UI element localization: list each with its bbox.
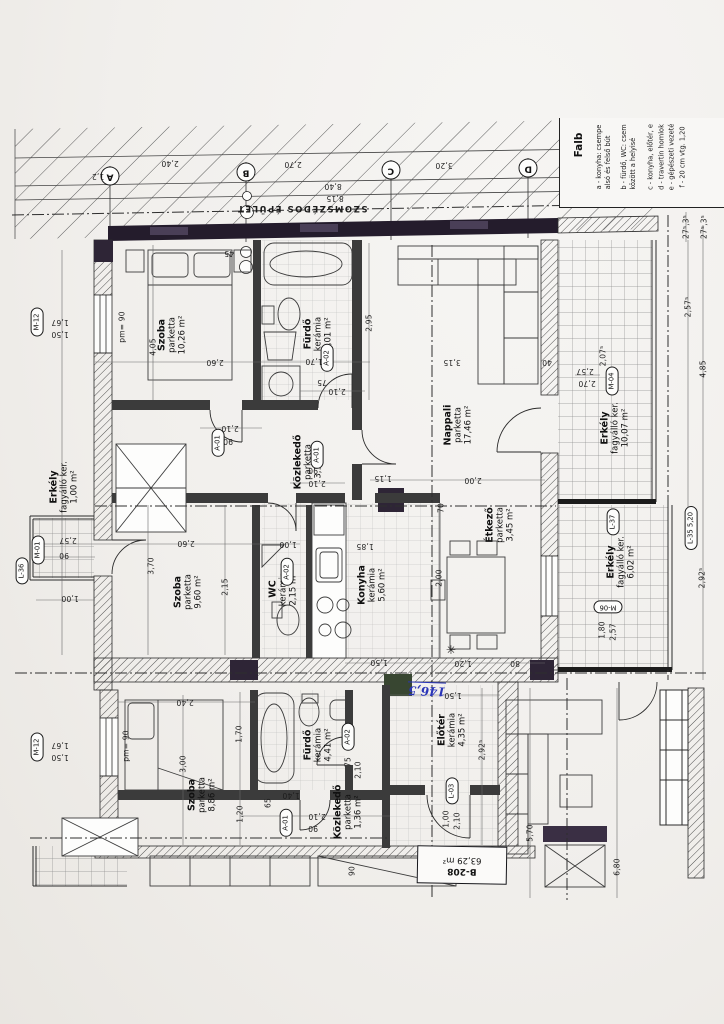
unit-number-box: B-208 63,29 m²: [417, 845, 508, 885]
dim-label-48: 2,92⁵: [698, 568, 706, 589]
dim-label-12: 2,57: [59, 536, 77, 544]
dim-label-45: 2,07⁵: [599, 346, 607, 367]
opening-tag-m-12: M-12: [31, 733, 44, 762]
room-rl-a: 8,86 m²: [208, 777, 218, 813]
room-label-10-erkély: Erkélyfagyálló ker.6,02 m²: [605, 536, 636, 588]
legend-item-line: d - travertin homlok: [658, 124, 667, 190]
dim-label-49: 1,80: [598, 621, 606, 639]
dim-label-2: 3,20: [435, 161, 453, 169]
room-rl-n: Fürdő: [302, 728, 313, 762]
room-rl-n: Nappali: [442, 405, 453, 446]
room-rl-f: kerámia: [368, 565, 378, 605]
dim-label-15: 4,05: [149, 338, 157, 356]
dim-label-16: 2,60: [206, 358, 224, 366]
dim-label-38: 1,20: [454, 659, 472, 667]
unit-area: 63,29 m²: [443, 854, 482, 865]
room-label-7-étkező: Étkezőparketta3,45 m²: [484, 507, 515, 543]
dim-label-37: 1,50: [370, 658, 388, 666]
room-rl-f: parketta: [454, 405, 464, 446]
grid-bubble-letter: B: [243, 167, 250, 177]
dim-label-23: 90: [223, 437, 233, 445]
handwritten-area-note: 146,5: [408, 681, 446, 698]
room-rl-a: 5,60 m²: [378, 565, 388, 605]
legend-item-line: a - konyha: csempe: [595, 125, 604, 190]
room-rl-n: WC: [267, 572, 278, 606]
dim-label-58: 90: [308, 824, 318, 832]
room-label-4-szoba: Szobaparketta9,60 m²: [172, 574, 203, 610]
room-rl-a: 3,45 m²: [506, 507, 516, 543]
dim-label-36: 2,00: [435, 569, 443, 587]
room-rl-n: Étkező: [484, 507, 495, 543]
dim-label-54: 1,20: [236, 805, 244, 823]
room-rl-n: Szoba: [186, 777, 197, 813]
room-rl-f: kerámia: [314, 728, 324, 762]
dim-label-53: 1,70: [235, 725, 243, 743]
room-rl-n: Konyha: [356, 565, 367, 605]
room-rl-a: 4,41 m²: [324, 728, 334, 762]
room-rl-a: 4,35 m²: [458, 713, 468, 747]
room-rl-n: Erkély: [48, 461, 59, 513]
legend-item-f: f - 20 cm vtg. 1,20: [679, 126, 688, 187]
room-label-12-fürdő: Fürdőkerámia4,41 m²: [302, 728, 333, 762]
dim-label-50: 2,57: [609, 623, 617, 641]
grid-bubble-d: D: [519, 159, 538, 178]
dim-label-21: 2,10: [328, 387, 346, 395]
room-label-13-közlekedő: Közlekedőparketta1,36 m²: [332, 785, 363, 840]
opening-tag-l-36: L-36: [16, 558, 29, 585]
dim-label-1: 2,70: [284, 160, 302, 168]
legend-item-c: c - konyha, előtér, e: [647, 124, 656, 190]
room-rl-f: parketta: [496, 507, 506, 543]
dim-label-41: 27⁵,3⁵: [682, 215, 690, 239]
dim-label-22: 2,10: [221, 424, 239, 432]
dim-label-20: 75: [317, 378, 327, 386]
room-rl-n: Erkély: [599, 402, 610, 454]
room-rl-f: kerámia: [448, 713, 458, 747]
room-rl-f: parketta: [198, 777, 208, 813]
opening-tag-m-06: M-06: [594, 601, 623, 614]
dim-label-59: 75: [344, 757, 352, 767]
room-rl-n: Erkély: [605, 536, 616, 588]
room-rl-n: Szoba: [172, 574, 183, 610]
dim-label-31: 3,70: [147, 557, 155, 575]
room-rl-a: 10,26 m²: [178, 316, 188, 355]
dim-label-5: 1,2: [92, 172, 105, 180]
dim-label-66: 6,80: [613, 858, 621, 876]
room-rl-f: fagyálló ker.: [611, 402, 621, 454]
room-rl-f: fagyálló ker.: [60, 461, 70, 513]
room-rl-n: Előtér: [436, 713, 447, 747]
legend-item-line: c - konyha, előtér, e: [647, 124, 656, 190]
dim-label-52: 3,00: [179, 755, 187, 773]
dim-label-51: 2,40: [176, 698, 194, 706]
opening-tag-m-12: M-12: [31, 308, 44, 337]
room-rl-f: parketta: [344, 785, 354, 840]
room-rl-a: 1,00 m²: [70, 461, 80, 513]
room-label-14-előtér: Előtérkerámia4,35 m²: [436, 713, 467, 747]
grid-bubble-c: C: [382, 161, 401, 180]
room-label-2-nappali: Nappaliparketta17,46 m²: [442, 405, 473, 446]
room-label-6-konyha: Konyhakerámia5,60 m²: [356, 565, 387, 605]
room-rl-n: Közlekedő: [292, 435, 303, 490]
dim-label-18: 2,95: [365, 314, 373, 332]
dim-label-55: 1,40: [282, 791, 300, 799]
legend-box: Falb a - konyha: csempealsó és felső bút…: [559, 118, 724, 208]
legend-title: Falb: [573, 133, 585, 158]
dim-label-42: 27⁵,3⁵: [700, 215, 708, 239]
room-rl-f: parketta: [168, 316, 178, 355]
dim-label-25: 90: [308, 466, 318, 474]
dim-label-11: pm= 90: [122, 730, 130, 761]
dim-label-19: 1,70: [305, 357, 323, 365]
dim-label-29: 1,15: [374, 474, 392, 482]
legend-item-a: a - konyha: csempealsó és felső bút: [595, 125, 613, 190]
opening-tag-m-04: M-04: [606, 367, 619, 396]
room-rl-n: Közlekedő: [332, 785, 343, 840]
annotation-overlay: Falb a - konyha: csempealsó és felső bút…: [0, 0, 724, 1024]
room-rl-f: fagyálló ker.: [617, 536, 627, 588]
dim-label-14: 1,00: [61, 594, 79, 602]
dim-label-24: 2,10: [308, 479, 326, 487]
room-rl-a: 10,07 m²: [621, 402, 631, 454]
opening-tag-a-02: A-02: [281, 558, 294, 586]
dim-label-40: ✳: [446, 644, 456, 656]
dim-label-62: 2,92⁵: [478, 740, 486, 761]
legend-item-line: alsó és felső bút: [604, 125, 613, 190]
dim-label-27: 40: [542, 358, 552, 366]
dim-label-43: 2,57: [576, 367, 594, 375]
room-label-9-erkély: Erkélyfagyálló ker.10,07 m²: [599, 402, 630, 454]
dim-label-7: 1,50: [51, 330, 69, 338]
grid-bubble-letter: C: [388, 165, 395, 175]
room-rl-f: parketta: [184, 574, 194, 610]
dim-label-56: 65: [264, 798, 272, 808]
dim-label-13: 90: [59, 551, 69, 559]
dim-label-60: 2,10: [354, 761, 362, 779]
opening-tag-m-01: M-01: [32, 536, 45, 565]
unit-id: B-208: [447, 864, 477, 876]
room-rl-a: 17,46 m²: [464, 405, 474, 446]
dim-label-26: 3,15: [443, 358, 461, 366]
dim-label-47: 4,85: [699, 360, 707, 378]
dim-label-8: pm= 90: [118, 311, 126, 342]
dim-label-9: 1,67: [51, 741, 69, 749]
dim-label-63: 1,00: [442, 810, 450, 828]
dim-label-30: 70: [437, 503, 445, 513]
opening-tag-l-35-5-20: L-35 5,20: [685, 506, 698, 550]
dim-label-4: 8,15: [326, 194, 344, 202]
legend-item-e: e - gépészeti vezeté: [668, 124, 677, 191]
legend-item-d: d - travertin homlok: [658, 124, 667, 190]
dim-label-67: 90: [348, 866, 356, 876]
room-rl-a: 1,36 m²: [354, 785, 364, 840]
legend-item-line: b - fürdő, WC: csem: [620, 124, 629, 189]
opening-tag-a-01: A-01: [311, 441, 324, 469]
neighbor-building-label: SZOMSZÉDOS ÉPÜLET: [237, 203, 368, 213]
dim-label-28: 2,00: [464, 476, 482, 484]
dim-label-61: 1,50: [444, 691, 462, 699]
dim-label-34: 1,00: [279, 540, 297, 548]
room-label-11-szoba: Szobaparketta8,86 m²: [186, 777, 217, 813]
opening-tag-l-03: L-03: [446, 778, 459, 805]
dim-label-46: 2,57⁵: [684, 297, 692, 318]
dim-label-10: 1,50: [51, 753, 69, 761]
legend-item-line: f - 20 cm vtg. 1,20: [679, 126, 688, 187]
room-label-0-szoba: Szobaparketta10,26 m²: [156, 316, 187, 355]
room-rl-a: 6,02 m²: [627, 536, 637, 588]
room-rl-n: Szoba: [156, 316, 167, 355]
dim-label-0: 2,40: [161, 159, 179, 167]
opening-tag-a-01: A-01: [280, 809, 293, 837]
dim-label-35: 1,85: [356, 542, 374, 550]
legend-item-line: e - gépészeti vezeté: [668, 124, 677, 191]
grid-bubble-b: B: [237, 163, 256, 182]
dim-label-33: 2,15: [221, 578, 229, 596]
grid-bubble-letter: A: [107, 171, 114, 181]
dim-label-17: 45: [224, 249, 234, 257]
dim-label-39: 80: [510, 659, 520, 667]
room-label-8-erkély: Erkélyfagyálló ker.1,00 m²: [48, 461, 79, 513]
legend-item-line: között a helyisé: [629, 124, 638, 189]
room-rl-a: 9,60 m²: [194, 574, 204, 610]
grid-bubble-letter: D: [524, 163, 531, 173]
room-rl-n: Fürdő: [302, 317, 313, 351]
dim-label-57: 2,10: [308, 812, 326, 820]
dim-label-3: 8,40: [324, 182, 342, 190]
legend-item-b: b - fürdő, WC: csemközött a helyisé: [620, 124, 638, 189]
dim-label-64: 2,10: [453, 812, 461, 830]
opening-tag-a-02: A-02: [342, 723, 355, 751]
opening-tag-l-37: L-37: [607, 509, 620, 536]
dim-label-44: 2,70: [578, 379, 596, 387]
scanned-floor-plan-sheet: Falb a - konyha: csempealsó és felső bút…: [0, 0, 724, 1024]
dim-label-65: 5,70: [526, 824, 534, 842]
dim-label-32: 2,60: [177, 539, 195, 547]
dim-label-6: 1,67: [51, 318, 69, 326]
